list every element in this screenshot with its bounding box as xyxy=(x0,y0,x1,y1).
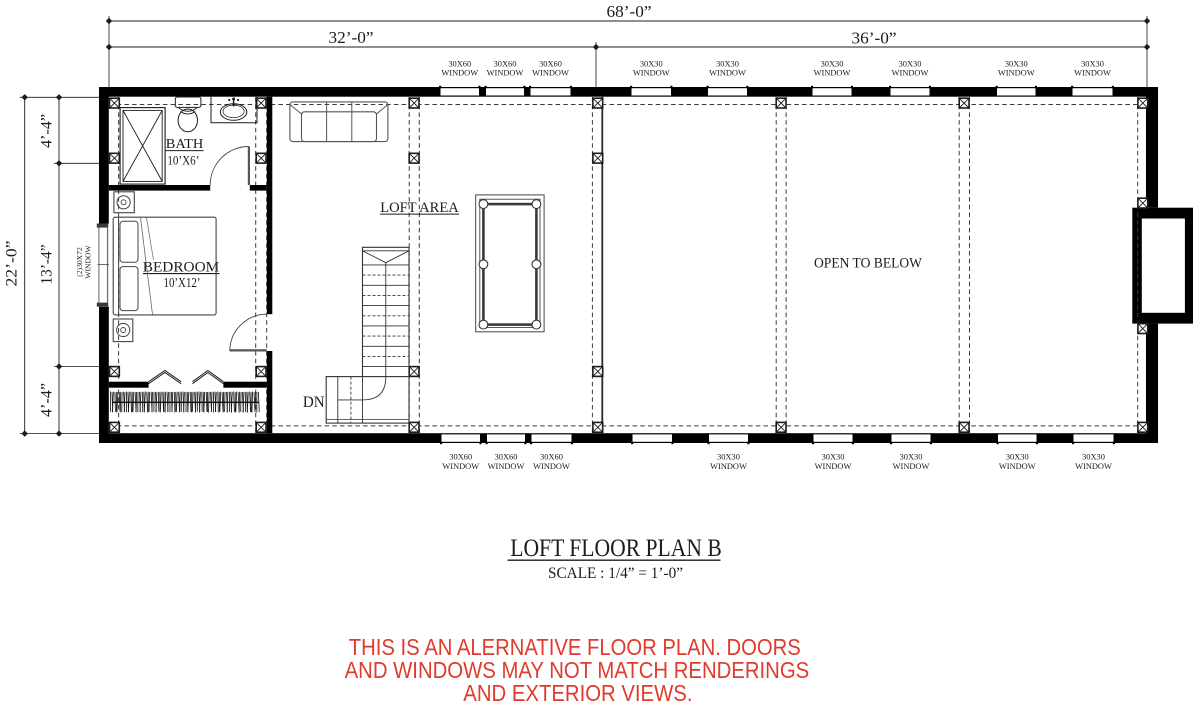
svg-text:WINDOW: WINDOW xyxy=(710,462,747,471)
svg-text:LOFT AREA: LOFT AREA xyxy=(380,200,459,216)
svg-text:30X30: 30X30 xyxy=(1005,59,1028,68)
svg-text:30X30: 30X30 xyxy=(900,453,923,462)
svg-text:30X60: 30X60 xyxy=(495,453,518,462)
svg-text:WINDOW: WINDOW xyxy=(633,69,670,78)
svg-text:30X60: 30X60 xyxy=(539,59,562,68)
svg-text:10’X12’: 10’X12’ xyxy=(164,275,201,290)
svg-text:WINDOW: WINDOW xyxy=(892,69,929,78)
svg-text:10’X6’: 10’X6’ xyxy=(167,153,199,168)
svg-text:WINDOW: WINDOW xyxy=(488,462,525,471)
svg-text:68’-0”: 68’-0” xyxy=(607,2,652,21)
svg-text:SCALE : 1/4” = 1’-0”: SCALE : 1/4” = 1’-0” xyxy=(548,565,683,582)
svg-text:WINDOW: WINDOW xyxy=(442,462,479,471)
svg-text:LOFT FLOOR PLAN B: LOFT FLOOR PLAN B xyxy=(510,535,722,562)
svg-text:32’-0”: 32’-0” xyxy=(329,28,374,47)
svg-text:WINDOW: WINDOW xyxy=(998,69,1035,78)
svg-text:30X60: 30X60 xyxy=(494,59,517,68)
svg-text:BATH: BATH xyxy=(166,136,204,151)
svg-text:WINDOW: WINDOW xyxy=(814,69,851,78)
svg-text:4’-4”: 4’-4” xyxy=(39,383,56,417)
svg-text:30X60: 30X60 xyxy=(540,453,563,462)
svg-text:30X30: 30X30 xyxy=(899,59,922,68)
svg-text:30X60: 30X60 xyxy=(448,59,471,68)
svg-text:30X30: 30X30 xyxy=(821,59,844,68)
svg-text:30X30: 30X30 xyxy=(1081,59,1104,68)
svg-text:22’-0”: 22’-0” xyxy=(4,241,21,287)
svg-text:WINDOW: WINDOW xyxy=(709,69,746,78)
svg-text:30X30: 30X30 xyxy=(822,453,845,462)
svg-text:WINDOW: WINDOW xyxy=(1074,69,1111,78)
svg-text:36’-0”: 36’-0” xyxy=(852,29,897,48)
svg-text:OPEN TO BELOW: OPEN TO BELOW xyxy=(814,256,922,272)
svg-text:WINDOW: WINDOW xyxy=(815,462,852,471)
svg-text:30X30: 30X30 xyxy=(717,453,740,462)
svg-text:30X30: 30X30 xyxy=(1082,453,1105,462)
svg-text:WINDOW: WINDOW xyxy=(487,69,524,78)
svg-text:DN: DN xyxy=(303,394,325,411)
svg-text:WINDOW: WINDOW xyxy=(84,245,93,279)
svg-text:30X30: 30X30 xyxy=(640,59,663,68)
svg-text:4’-4”: 4’-4” xyxy=(39,114,56,148)
svg-text:30X30: 30X30 xyxy=(716,59,739,68)
svg-text:WINDOW: WINDOW xyxy=(441,69,478,78)
svg-text:WINDOW: WINDOW xyxy=(533,462,570,471)
svg-text:WINDOW: WINDOW xyxy=(999,462,1036,471)
svg-text:AND EXTERIOR VIEWS.: AND EXTERIOR VIEWS. xyxy=(463,680,692,705)
svg-text:30X60: 30X60 xyxy=(449,453,472,462)
svg-text:30X30: 30X30 xyxy=(1006,453,1029,462)
svg-text:WINDOW: WINDOW xyxy=(532,69,569,78)
svg-text:13’-4”: 13’-4” xyxy=(39,245,56,285)
svg-text:WINDOW: WINDOW xyxy=(893,462,930,471)
svg-text:WINDOW: WINDOW xyxy=(1075,462,1112,471)
